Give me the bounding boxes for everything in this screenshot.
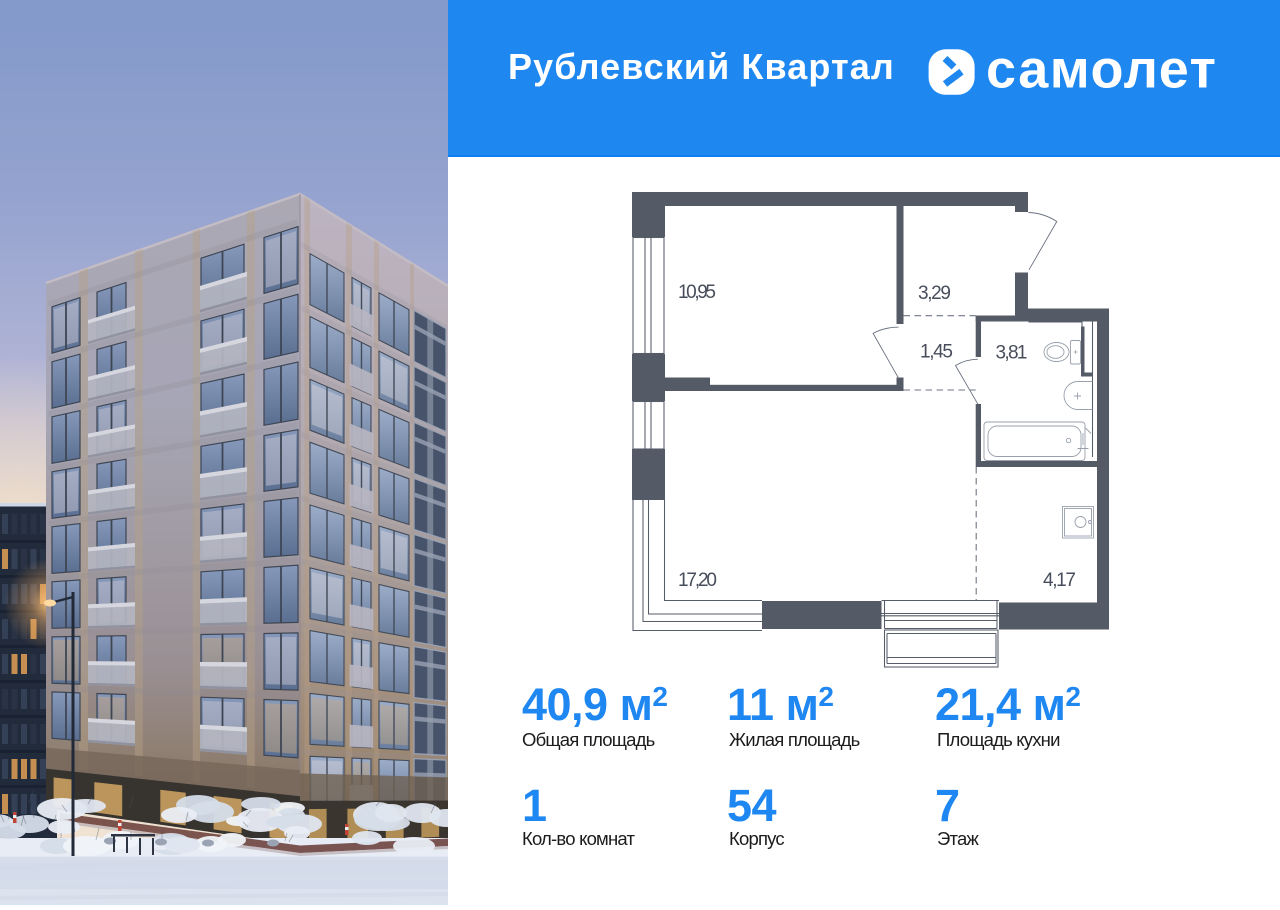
svg-text:3,81: 3,81 <box>996 343 1028 364</box>
svg-text:1,45: 1,45 <box>920 342 953 363</box>
svg-text:3,29: 3,29 <box>918 283 951 304</box>
svg-text:10,95: 10,95 <box>678 282 716 303</box>
svg-text:самолет: самолет <box>986 49 1217 95</box>
svg-text:17,20: 17,20 <box>678 570 717 591</box>
svg-text:4,17: 4,17 <box>1043 570 1076 591</box>
